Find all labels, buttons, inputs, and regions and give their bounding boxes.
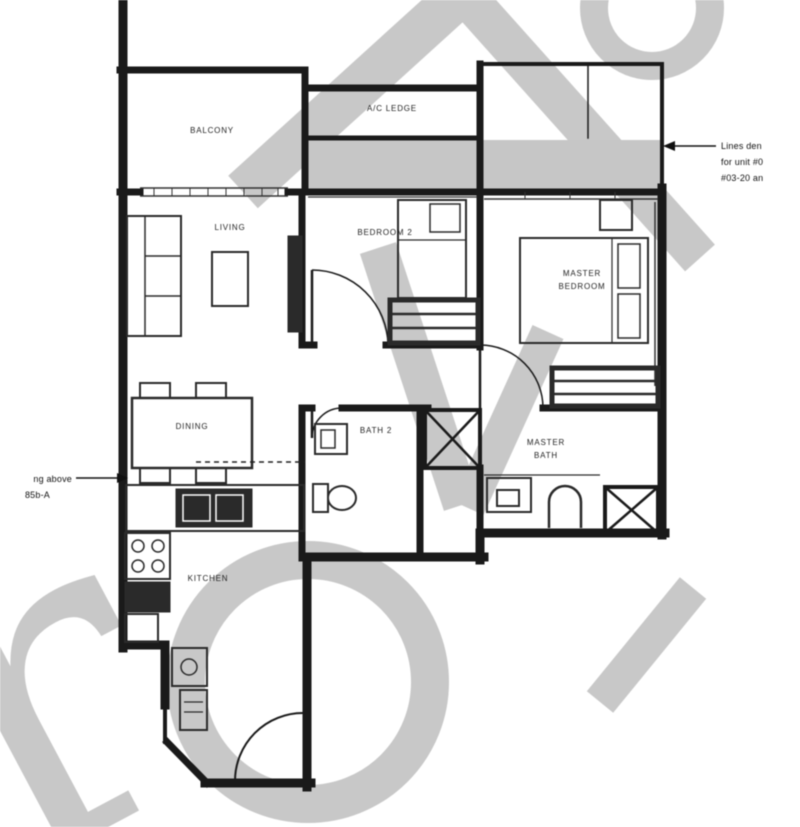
room-label-dining: DINING [176, 422, 209, 431]
sofa-cushions [145, 216, 181, 336]
left-annotation-line1: ng above [33, 474, 72, 484]
dining-set [132, 383, 252, 483]
watermark-curve [594, 0, 710, 66]
right-annotation-line3: #03-20 an [721, 173, 763, 183]
burner [152, 560, 164, 572]
dining-chair [140, 468, 170, 483]
cabinet [125, 614, 158, 642]
floor-plan-image: r [0, 0, 800, 827]
right-annotation-line1: Lines den [721, 141, 762, 151]
room-label-kitchen: KITCHEN [188, 574, 229, 583]
right-annotation-line2: for unit #0 [721, 157, 763, 167]
wardrobe [552, 368, 658, 406]
room-label-bath2: BATH 2 [360, 426, 392, 435]
pillow [618, 244, 640, 288]
toilet-inner [497, 490, 519, 506]
ac-shaft-x [605, 487, 658, 533]
coffee-table [212, 252, 248, 306]
kitchen-counter [126, 485, 304, 531]
room-label-master-bath-line1: MASTER [527, 438, 565, 447]
watermark: r [0, 0, 710, 827]
sofa-outline [127, 216, 181, 336]
dining-chair [196, 468, 226, 483]
room-label-living: LIVING [214, 223, 245, 232]
dining-chair [196, 383, 226, 398]
sofa [127, 216, 181, 336]
void-shade [307, 140, 479, 190]
pillow [430, 204, 460, 232]
room-label-master-bath-line2: BATH [534, 451, 558, 460]
room-label-master-bedroom-line2: BEDROOM [559, 282, 606, 291]
room-label-ac-ledge: A/C LEDGE [367, 104, 417, 113]
pillow [618, 294, 640, 338]
leader-arrowhead [663, 141, 675, 151]
burner [152, 540, 164, 552]
bath2-sink-basin [321, 430, 335, 448]
hob [125, 533, 170, 579]
wardrobe-stripes [552, 381, 658, 394]
room-label-master-bedroom-line1: MASTER [563, 269, 601, 278]
master-bath-fixtures [484, 475, 600, 528]
tv-console [288, 236, 302, 332]
basin-arch [549, 486, 581, 528]
left-annotation-line2: 85b-A [25, 490, 50, 500]
room-label-bedroom2: BEDROOM 2 [357, 228, 412, 237]
dining-chair [140, 383, 170, 398]
floor-plan-page: r [0, 0, 800, 827]
dining-table [132, 398, 252, 468]
oven [125, 582, 170, 612]
burner [132, 540, 144, 552]
watermark-stroke [600, 588, 693, 702]
toilet-tank [313, 484, 328, 512]
wardrobe-outline [552, 368, 658, 406]
bath2-sink [315, 424, 347, 454]
burner [132, 560, 144, 572]
bath2-fixtures [313, 424, 356, 512]
room-label-balcony: BALCONY [190, 126, 234, 135]
void-shade [482, 140, 660, 190]
toilet-bowl [328, 486, 356, 510]
